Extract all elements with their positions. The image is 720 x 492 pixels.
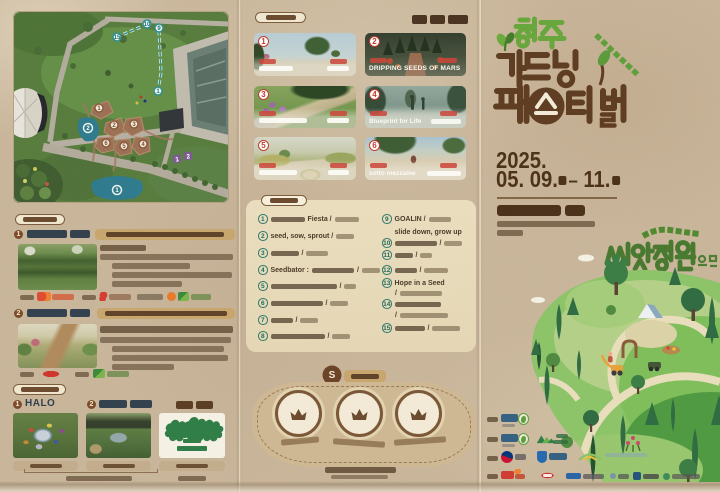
svg-text:15: 15 bbox=[114, 35, 121, 41]
svg-text:10: 10 bbox=[144, 22, 151, 28]
